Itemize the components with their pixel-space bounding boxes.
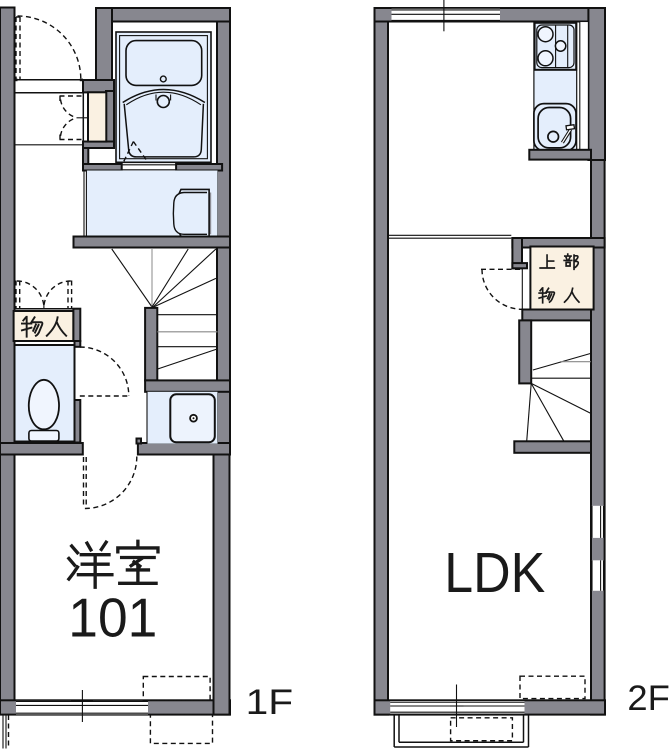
svg-text:101: 101 [68, 587, 157, 649]
svg-text:1F: 1F [246, 683, 294, 722]
svg-text:2F: 2F [627, 679, 670, 718]
svg-text:LDK: LDK [444, 541, 545, 605]
